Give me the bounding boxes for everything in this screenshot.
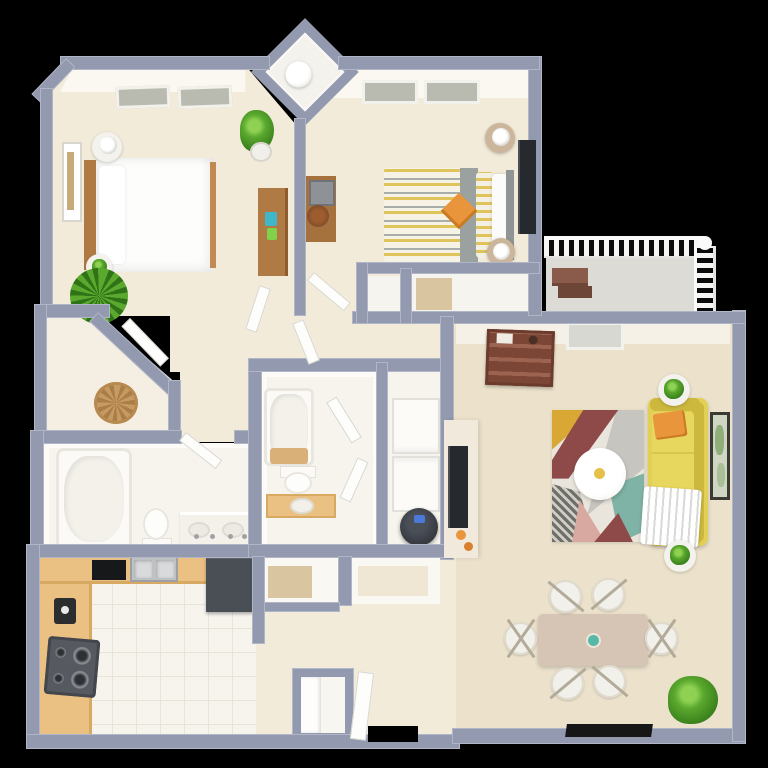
wall-closet-bottom <box>32 430 182 444</box>
wall-kitchen-left <box>26 544 40 748</box>
snack-bowl <box>464 542 473 551</box>
wall-corridor-divider <box>356 262 368 324</box>
range-hood <box>92 560 126 580</box>
bar-shelf <box>485 329 555 387</box>
refrigerator <box>206 556 254 612</box>
wall-kitchen-top <box>28 544 262 558</box>
wall-bed2-top <box>338 56 540 70</box>
table-lamp-icon <box>492 128 510 146</box>
balcony-railing-right <box>694 246 716 318</box>
stove <box>44 636 101 698</box>
ceiling-vent-icon <box>362 80 418 104</box>
plant-pot <box>250 142 272 162</box>
dresser <box>258 188 288 276</box>
wall-bath2-top <box>248 358 448 372</box>
throw-blanket <box>640 486 702 548</box>
dining-chair <box>551 667 584 700</box>
accent-pillow <box>652 410 687 440</box>
stacked-dryer <box>392 456 440 512</box>
dining-chair <box>549 580 582 613</box>
ceiling-vent-icon <box>116 85 171 109</box>
toilet <box>280 466 314 494</box>
coat-closet <box>292 668 354 740</box>
double-sink <box>130 556 178 582</box>
wall-bath2-left <box>248 362 262 558</box>
stacked-washer <box>392 398 440 454</box>
wall-art <box>62 142 82 222</box>
wall-bed1-top <box>60 56 270 70</box>
wicker-basket-icon <box>94 382 138 424</box>
wall-corridor-divider <box>400 268 412 324</box>
railing-post <box>698 236 712 250</box>
wall-bath1-left <box>30 430 44 558</box>
centerpiece-plant-icon <box>588 635 599 646</box>
robot-vacuum-icon <box>400 508 438 546</box>
balcony-bench <box>552 268 588 286</box>
floor-plan-render <box>0 0 768 768</box>
balcony-railing-top <box>544 236 704 258</box>
wall-entry-closet-divider <box>338 556 352 606</box>
living-wall-tv <box>448 446 468 528</box>
wall-bath2-laundry-divider <box>376 362 388 558</box>
dining-chair <box>592 578 625 611</box>
wall-closet-left <box>34 304 47 444</box>
table-decor <box>594 468 605 479</box>
wall-tv <box>518 140 536 234</box>
front-door-opening <box>368 726 418 742</box>
dining-chair <box>645 622 678 655</box>
water-heater-icon <box>286 61 312 87</box>
vanity-sink <box>266 494 336 518</box>
coffee-maker <box>54 598 76 624</box>
ceiling-vent-icon <box>178 85 233 109</box>
wall-kitchen-entry <box>252 556 265 644</box>
bath-mat <box>270 448 308 464</box>
bathtub <box>56 448 132 550</box>
apartment-floor-plan <box>0 0 768 768</box>
stool <box>307 205 329 227</box>
pillow <box>99 166 125 264</box>
wall-bed2-bottom <box>356 262 540 274</box>
wall-bed1-left <box>40 88 53 316</box>
laptop <box>309 180 335 206</box>
door-mat <box>565 724 653 737</box>
dining-table <box>538 614 648 666</box>
entry-closet-left-shelf <box>268 566 312 598</box>
snack-bowl <box>456 530 466 540</box>
wall-living-right <box>732 310 746 742</box>
table-lamp-icon <box>99 136 117 154</box>
balcony-bench-lower <box>558 286 592 298</box>
dining-chair <box>504 622 537 655</box>
hall-closet-shelf <box>416 278 452 310</box>
wall-entry-closet-bottom <box>262 602 340 612</box>
table-lamp-icon <box>493 243 510 260</box>
entry-closet-right-shelf <box>358 566 428 596</box>
wall-art <box>710 412 730 500</box>
ceiling-vent-icon <box>424 80 480 104</box>
wall-between-bedrooms <box>294 118 306 316</box>
footboard <box>210 162 216 268</box>
hall-closet-small <box>368 276 400 314</box>
ceiling-vent-icon <box>566 322 624 350</box>
dining-chair <box>593 665 626 698</box>
